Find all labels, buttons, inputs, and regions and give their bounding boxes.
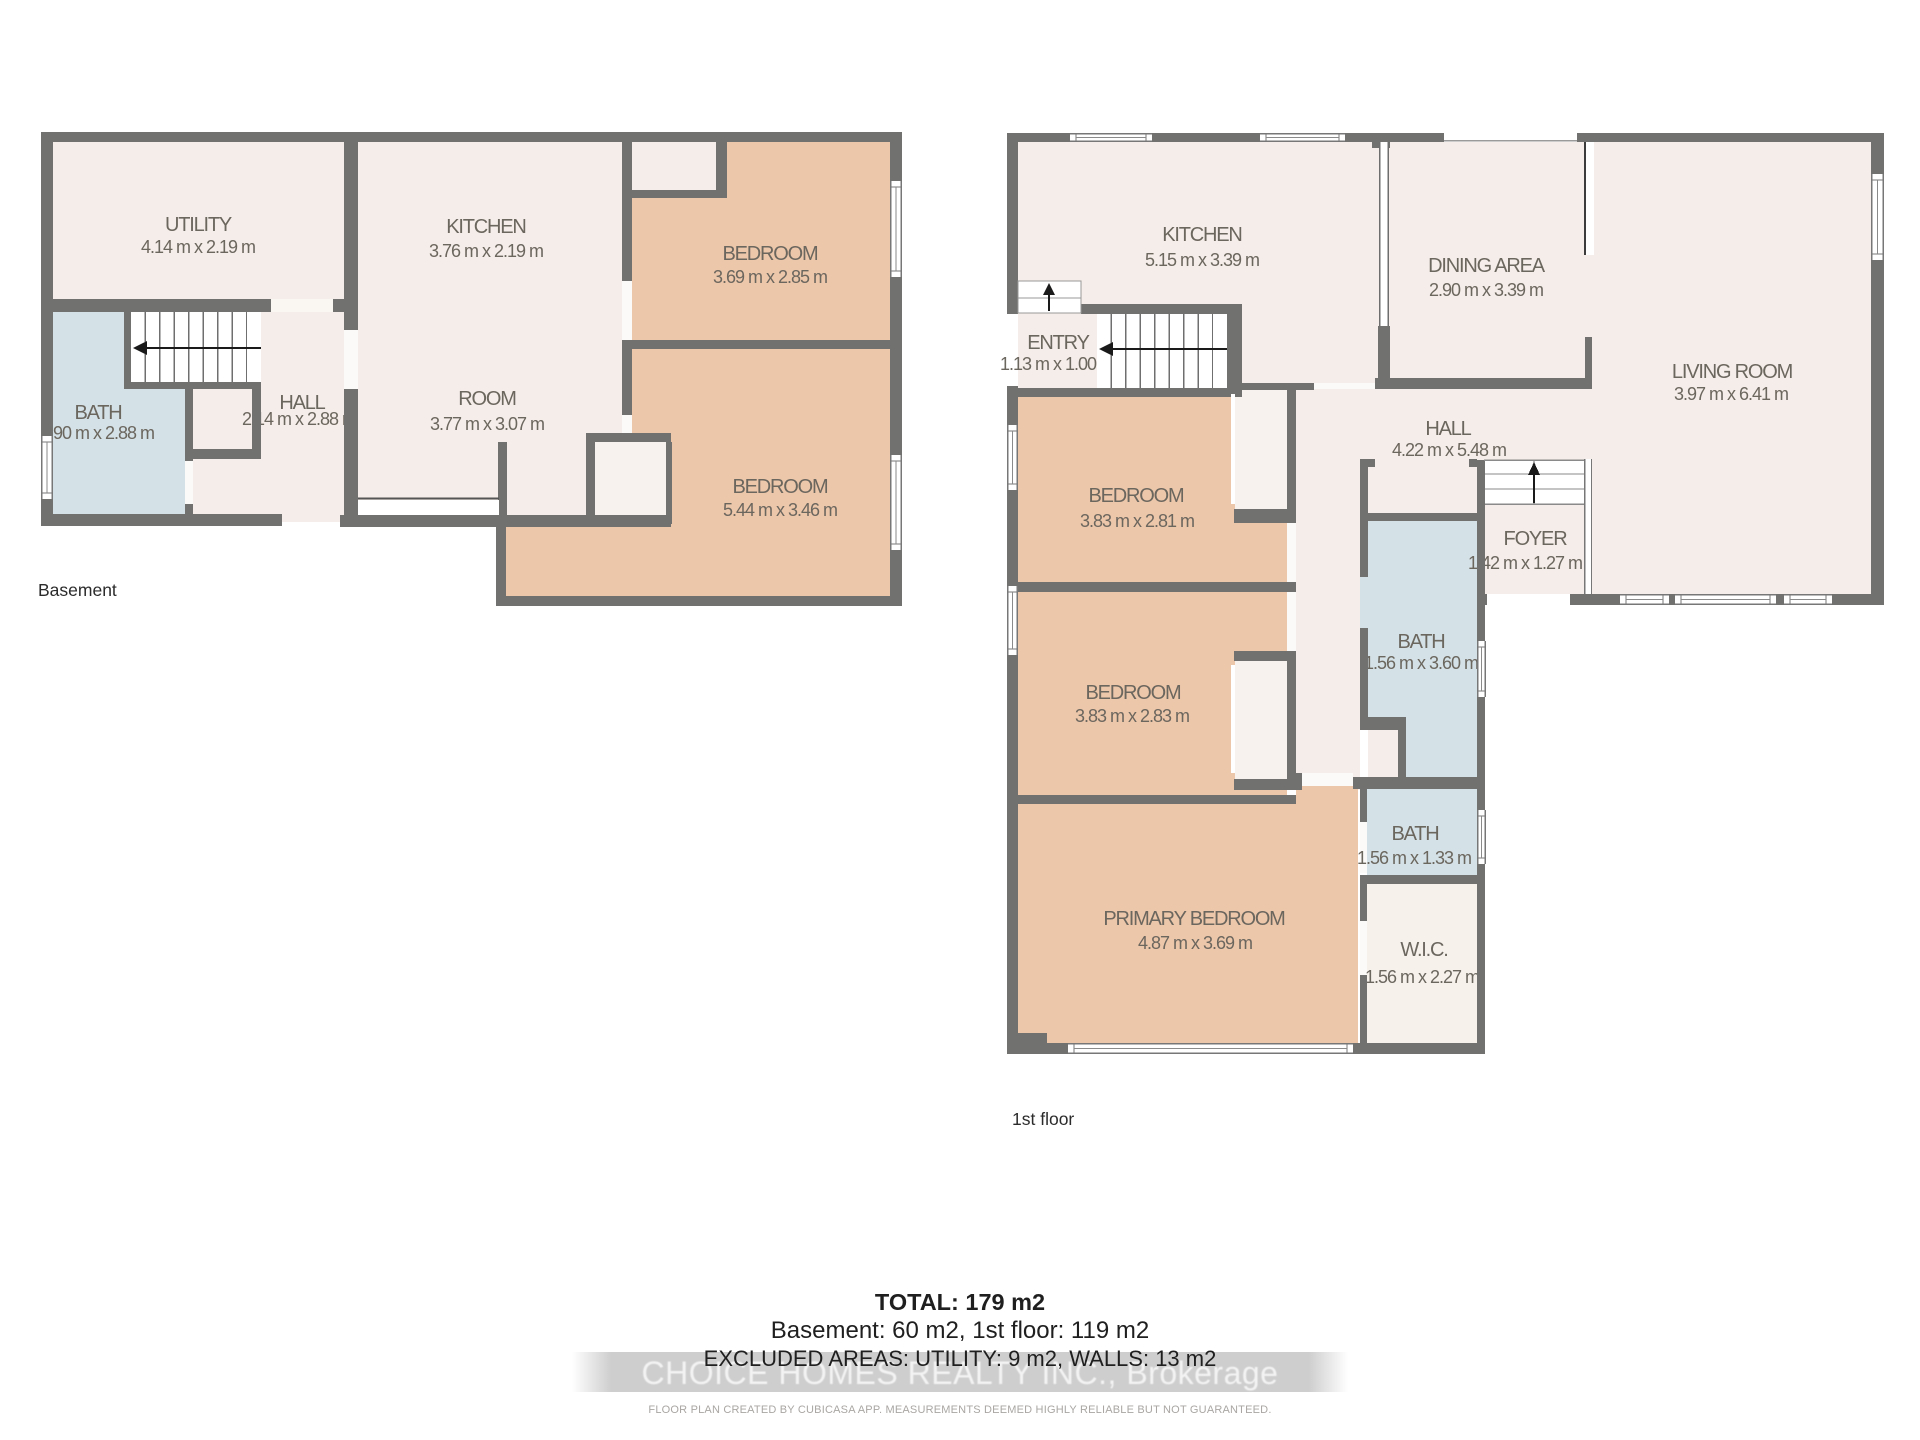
svg-text:DINING AREA: DINING AREA (1428, 255, 1546, 277)
svg-text:KITCHEN: KITCHEN (1162, 224, 1241, 246)
svg-text:4.14 m x 2.19 m: 4.14 m x 2.19 m (141, 237, 255, 257)
svg-text:Basement: 60 m2, 1st floor: 11: Basement: 60 m2, 1st floor: 119 m2 (771, 1317, 1149, 1344)
svg-text:PRIMARY BEDROOM: PRIMARY BEDROOM (1103, 908, 1285, 930)
svg-text:BEDROOM: BEDROOM (1089, 485, 1184, 507)
svg-text:1.42 m x 1.27 m: 1.42 m x 1.27 m (1468, 553, 1582, 573)
svg-text:BATH: BATH (74, 402, 121, 424)
svg-text:1.56 m x 3.60 m: 1.56 m x 3.60 m (1364, 653, 1478, 673)
svg-text:BEDROOM: BEDROOM (723, 243, 818, 265)
svg-text:LIVING ROOM: LIVING ROOM (1672, 361, 1793, 383)
svg-text:Basement: Basement (38, 580, 117, 600)
svg-text:UTILITY: UTILITY (165, 214, 232, 236)
svg-text:ROOM: ROOM (458, 388, 516, 410)
svg-text:FLOOR PLAN CREATED BY CUBICASA: FLOOR PLAN CREATED BY CUBICASA APP. MEAS… (648, 1404, 1271, 1416)
svg-text:BATH: BATH (1391, 823, 1438, 845)
svg-text:FOYER: FOYER (1504, 528, 1568, 550)
svg-text:BEDROOM: BEDROOM (1086, 682, 1181, 704)
svg-text:3.69 m x 2.85 m: 3.69 m x 2.85 m (713, 267, 827, 287)
svg-text:KITCHEN: KITCHEN (446, 216, 525, 238)
svg-text:W.I.C.: W.I.C. (1400, 939, 1447, 961)
svg-text:ENTRY: ENTRY (1027, 332, 1089, 354)
svg-text:3.77 m x 3.07 m: 3.77 m x 3.07 m (430, 414, 544, 434)
svg-text:5.15 m x 3.39 m: 5.15 m x 3.39 m (1145, 250, 1259, 270)
svg-text:HALL: HALL (1425, 418, 1471, 440)
svg-text:2.90 m x 3.39 m: 2.90 m x 3.39 m (1429, 280, 1543, 300)
svg-text:3.97 m x 6.41 m: 3.97 m x 6.41 m (1674, 384, 1788, 404)
svg-text:BATH: BATH (1397, 631, 1444, 653)
svg-text:3.83 m x 2.83 m: 3.83 m x 2.83 m (1075, 706, 1189, 726)
svg-text:4.22 m x 5.48 m: 4.22 m x 5.48 m (1392, 440, 1506, 460)
svg-text:1.13 m x 1.00 m: 1.13 m x 1.00 m (1000, 354, 1114, 374)
svg-text:1.56 m x 2.27 m: 1.56 m x 2.27 m (1365, 967, 1479, 987)
svg-text:4.87 m x 3.69 m: 4.87 m x 3.69 m (1138, 933, 1252, 953)
svg-text:1.56 m x 1.33 m: 1.56 m x 1.33 m (1357, 848, 1471, 868)
svg-text:TOTAL: 179 m2: TOTAL: 179 m2 (875, 1289, 1045, 1315)
svg-text:EXCLUDED AREAS: UTILITY: 9 m2,: EXCLUDED AREAS: UTILITY: 9 m2, WALLS: 13… (704, 1346, 1217, 1371)
svg-text:1st floor: 1st floor (1012, 1109, 1074, 1129)
svg-text:3.76 m x 2.19 m: 3.76 m x 2.19 m (429, 241, 543, 261)
svg-text:1.90 m x 2.88 m: 1.90 m x 2.88 m (40, 423, 154, 443)
svg-text:BEDROOM: BEDROOM (733, 476, 828, 498)
svg-text:3.83 m x 2.81 m: 3.83 m x 2.81 m (1080, 511, 1194, 531)
svg-text:5.44 m x 3.46 m: 5.44 m x 3.46 m (723, 500, 837, 520)
